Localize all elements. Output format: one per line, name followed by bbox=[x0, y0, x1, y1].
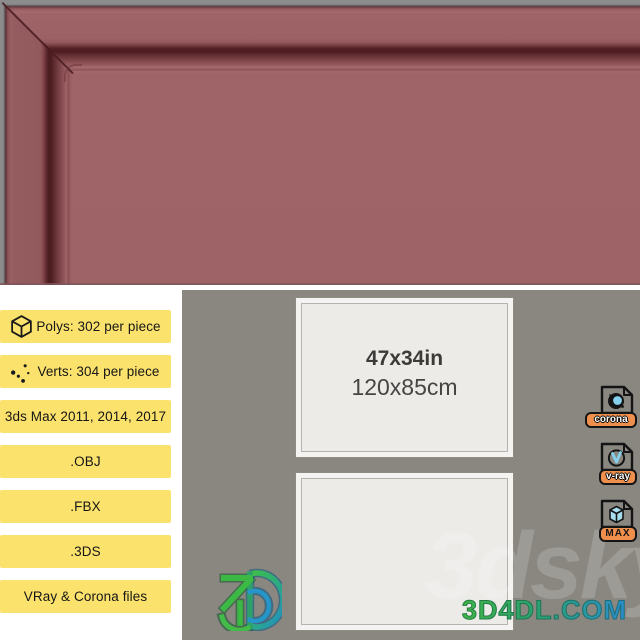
badge-obj: .OBJ bbox=[0, 445, 171, 478]
max-cube-icon bbox=[610, 507, 623, 523]
file-format-icons: corona v-ray bbox=[583, 385, 637, 542]
max-file-icon: MAX bbox=[583, 499, 637, 542]
max-label: MAX bbox=[599, 526, 637, 542]
file-page-icon bbox=[599, 442, 635, 472]
product-preview-card: Polys: 302 per piece Verts: 304 per piec… bbox=[0, 0, 640, 640]
inner-molding-corner bbox=[64, 64, 82, 82]
corona-logo-icon bbox=[608, 393, 624, 409]
vray-file-icon: v-ray bbox=[583, 442, 637, 485]
badge-renderers: VRay & Corona files bbox=[0, 580, 171, 613]
size-cm-label: 120x85cm bbox=[351, 374, 457, 401]
size-reference-frame: 47x34in 120x85cm bbox=[296, 298, 513, 457]
badge-fbx: .FBX bbox=[0, 490, 171, 523]
vray-logo-icon bbox=[609, 450, 624, 465]
3d4dl-logo-mark bbox=[212, 565, 282, 631]
badge-polys: Polys: 302 per piece bbox=[0, 310, 171, 343]
file-page-icon bbox=[599, 499, 635, 529]
size-inches-label: 47x34in bbox=[366, 347, 443, 371]
file-page-icon bbox=[599, 385, 635, 415]
vray-label: v-ray bbox=[599, 469, 637, 485]
3d4dl-site-watermark: 3D4DL.COM bbox=[462, 595, 627, 626]
badge-3ds: .3DS bbox=[0, 535, 171, 568]
specs-panel: Polys: 302 per piece Verts: 304 per piec… bbox=[0, 285, 182, 640]
badge-verts: Verts: 304 per piece bbox=[0, 355, 171, 388]
vertices-icon bbox=[9, 359, 34, 384]
frame-top-molding bbox=[0, 0, 640, 285]
corona-label: corona bbox=[585, 412, 637, 428]
frame-corner-render bbox=[0, 0, 640, 285]
cube-icon bbox=[9, 314, 34, 339]
badge-verts-label: Verts: 304 per piece bbox=[37, 364, 159, 379]
corona-file-icon: corona bbox=[583, 385, 637, 428]
badge-max-versions: 3ds Max 2011, 2014, 2017 bbox=[0, 400, 171, 433]
badge-polys-label: Polys: 302 per piece bbox=[36, 319, 160, 334]
preview-panel: 47x34in 120x85cm 3dsky corona bbox=[182, 290, 640, 640]
